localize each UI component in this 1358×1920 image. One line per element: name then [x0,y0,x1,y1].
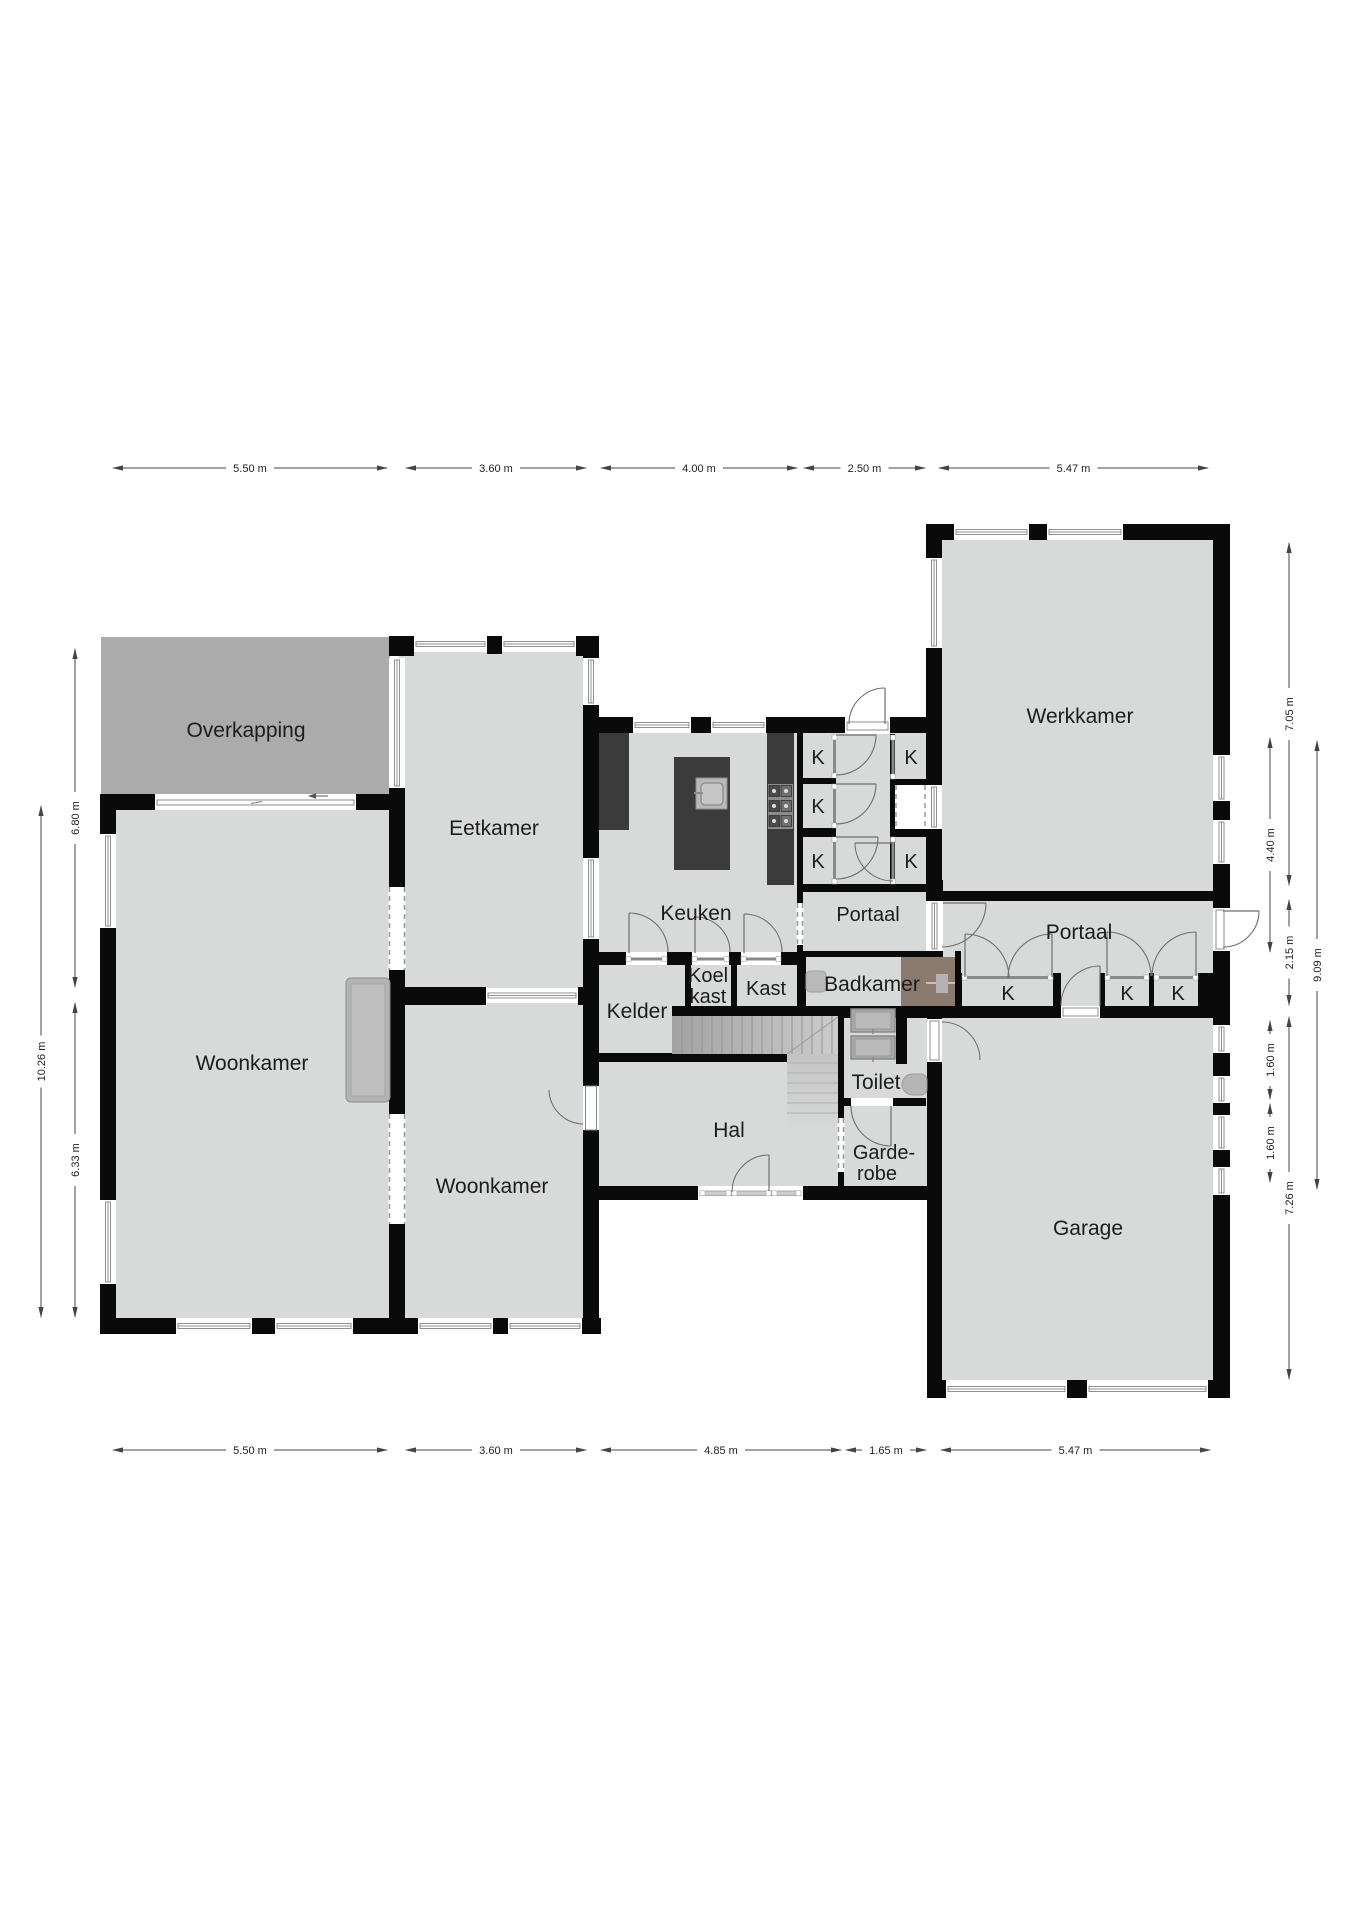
svg-text:Garde-: Garde- [853,1142,915,1164]
svg-text:Kelder: Kelder [607,1000,668,1023]
svg-text:1.65 m: 1.65 m [869,1445,903,1457]
svg-text:Werkkamer: Werkkamer [1027,705,1134,728]
svg-text:9.09 m: 9.09 m [1312,948,1324,982]
svg-text:K: K [811,851,825,873]
svg-text:robe: robe [857,1163,897,1185]
svg-text:3.60 m: 3.60 m [479,463,513,475]
svg-text:K: K [811,796,825,818]
svg-text:3.60 m: 3.60 m [479,1445,513,1457]
svg-text:5.50 m: 5.50 m [233,1445,267,1457]
svg-text:Portaal: Portaal [1046,921,1113,944]
svg-text:K: K [811,747,825,769]
svg-text:4.00 m: 4.00 m [682,463,716,475]
svg-text:4.85 m: 4.85 m [704,1445,738,1457]
svg-text:K: K [904,851,918,873]
svg-text:Garage: Garage [1053,1217,1123,1240]
svg-text:7.05 m: 7.05 m [1284,697,1296,731]
svg-text:5.47 m: 5.47 m [1059,1445,1093,1457]
svg-text:5.50 m: 5.50 m [233,463,267,475]
svg-text:6.33 m: 6.33 m [70,1143,82,1177]
svg-text:7.26 m: 7.26 m [1284,1181,1296,1215]
svg-text:2.15 m: 2.15 m [1284,936,1296,970]
svg-text:Woonkamer: Woonkamer [196,1052,309,1075]
svg-text:2.50 m: 2.50 m [848,463,882,475]
svg-text:Hal: Hal [713,1119,745,1142]
svg-text:K: K [1171,983,1185,1005]
svg-text:Toilet: Toilet [851,1071,900,1094]
svg-text:Keuken: Keuken [660,902,731,925]
svg-text:Koel: Koel [688,965,728,987]
svg-text:Eetkamer: Eetkamer [449,817,539,840]
svg-text:4.40 m: 4.40 m [1265,828,1277,862]
svg-text:K: K [1120,983,1134,1005]
svg-text:K: K [1001,983,1015,1005]
svg-text:Portaal: Portaal [836,904,899,926]
svg-text:1.60 m: 1.60 m [1265,1043,1277,1077]
svg-text:Kast: Kast [746,978,786,1000]
svg-text:Badkamer: Badkamer [824,973,920,996]
svg-text:K: K [904,747,918,769]
svg-text:1.60 m: 1.60 m [1265,1126,1277,1160]
svg-text:5.47 m: 5.47 m [1057,463,1091,475]
svg-text:Overkapping: Overkapping [186,719,305,742]
svg-text:10.26 m: 10.26 m [36,1042,48,1082]
svg-text:kast: kast [690,986,727,1008]
svg-text:6.80 m: 6.80 m [70,801,82,835]
svg-text:Woonkamer: Woonkamer [436,1175,549,1198]
